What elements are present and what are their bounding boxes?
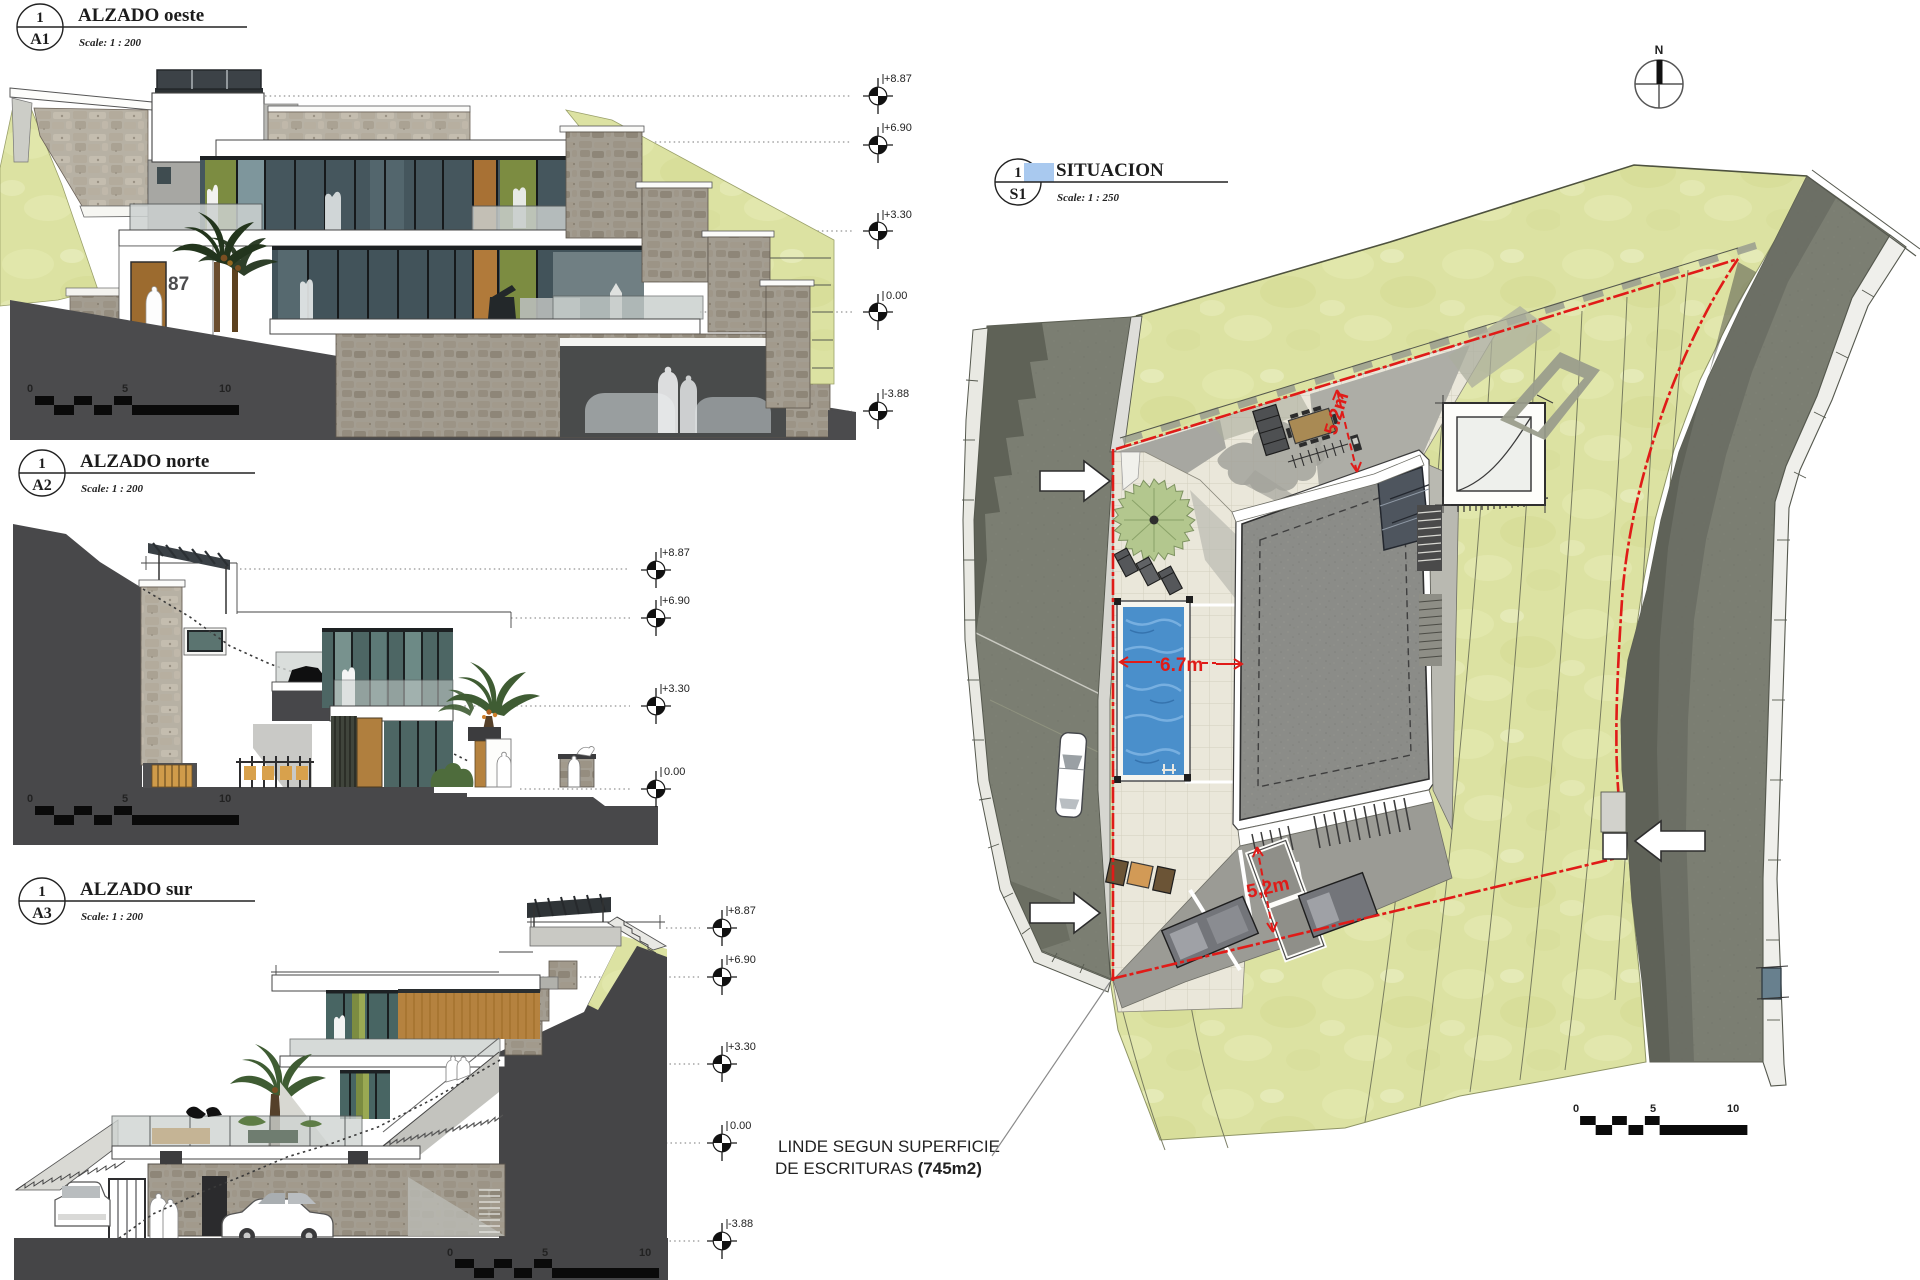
svg-text:5: 5 [542,1247,548,1259]
svg-text:1: 1 [38,884,46,900]
svg-text:5: 5 [122,793,128,805]
svg-text:DE ESCRITURAS (745m2): DE ESCRITURAS (745m2) [775,1159,982,1178]
svg-text:0: 0 [27,383,33,395]
svg-text:ALZADO oeste: ALZADO oeste [78,5,204,26]
svg-text:0.00: 0.00 [886,290,907,302]
svg-text:1: 1 [36,10,44,26]
svg-text:0.00: 0.00 [730,1120,751,1132]
svg-text:10: 10 [219,793,231,805]
svg-text:A2: A2 [32,477,52,494]
svg-text:5: 5 [1650,1103,1656,1115]
svg-text:LINDE SEGUN SUPERFICIE: LINDE SEGUN SUPERFICIE [778,1137,1000,1156]
svg-text:87: 87 [168,274,189,295]
svg-text:0: 0 [27,793,33,805]
svg-text:+6.90: +6.90 [728,954,756,966]
svg-text:Scale: 1 : 200: Scale: 1 : 200 [81,483,144,495]
svg-text:ALZADO sur: ALZADO sur [80,879,193,900]
svg-text:10: 10 [219,383,231,395]
svg-text:0.00: 0.00 [664,766,685,778]
svg-text:6.7m: 6.7m [1160,655,1203,676]
svg-text:A3: A3 [32,905,52,922]
svg-text:+3.30: +3.30 [884,209,912,221]
svg-text:+8.87: +8.87 [662,547,690,559]
svg-text:Scale: 1 : 200: Scale: 1 : 200 [81,911,144,923]
svg-text:0: 0 [447,1247,453,1259]
svg-text:+8.87: +8.87 [728,905,756,917]
svg-text:0: 0 [1573,1103,1579,1115]
svg-text:ALZADO norte: ALZADO norte [80,451,209,472]
svg-text:SITUACION: SITUACION [1056,160,1164,181]
svg-text:1: 1 [38,456,46,472]
svg-text:+3.30: +3.30 [662,683,690,695]
svg-text:-3.88: -3.88 [884,388,909,400]
svg-text:+8.87: +8.87 [884,73,912,85]
svg-text:10: 10 [1727,1103,1739,1115]
svg-text:A1: A1 [30,31,50,48]
svg-text:N: N [1655,43,1664,57]
svg-text:Scale: 1 : 250: Scale: 1 : 250 [1057,192,1120,204]
svg-text:+6.90: +6.90 [662,595,690,607]
svg-text:+3.30: +3.30 [728,1041,756,1053]
svg-text:5: 5 [122,383,128,395]
svg-text:1: 1 [1014,165,1022,181]
svg-text:S1: S1 [1010,186,1027,203]
svg-text:+6.90: +6.90 [884,122,912,134]
svg-text:Scale: 1 : 200: Scale: 1 : 200 [79,37,142,49]
svg-text:-3.88: -3.88 [728,1218,753,1230]
svg-text:10: 10 [639,1247,651,1259]
